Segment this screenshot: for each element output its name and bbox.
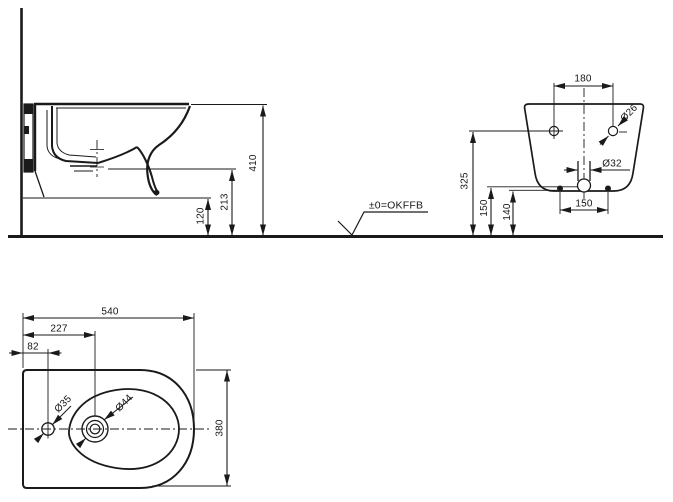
- mounting-bracket: [24, 104, 33, 172]
- foot-tip: [154, 190, 160, 195]
- side-view-dimensions: 410 213 120: [108, 105, 267, 236]
- drawing-canvas: 410 213 120 ±0=OKFFB Ø26: [0, 0, 673, 502]
- side-view: 410 213 120: [23, 104, 267, 236]
- dim-label-top-hole-spacing: 180: [574, 74, 592, 85]
- datum-level-symbol: [338, 212, 428, 235]
- dim-label-fixing-height: 140: [502, 203, 513, 221]
- bidet-side-profile: [23, 104, 211, 198]
- dim-label-outlet-offset: 227: [50, 324, 68, 335]
- dim-label-clearance: 120: [196, 207, 207, 225]
- dim-label-bottom-fixing-spacing: 150: [575, 199, 593, 210]
- dim-label-tap-offset: 82: [27, 342, 39, 353]
- technical-drawing-bidet: 410 213 120 ±0=OKFFB Ø26: [0, 0, 673, 502]
- outlet-hole: [578, 179, 591, 192]
- plan-view: Ø35 Ø44 540 227 82 380: [8, 307, 231, 489]
- dim-label-top-hole-height: 325: [460, 172, 471, 190]
- dim-label-supply-height: 150: [479, 199, 490, 217]
- datum-label: ±0=OKFFB: [369, 200, 423, 212]
- fixing-point-right: [605, 186, 611, 192]
- dim-label-outlet-diameter: Ø32: [602, 159, 622, 170]
- floor-datum: ±0=OKFFB: [338, 200, 428, 236]
- dim-label-depth: 540: [101, 307, 119, 318]
- dim-label-outlet-height: 213: [220, 193, 231, 211]
- dim-label-total-height: 410: [248, 154, 259, 172]
- dim-label-width: 380: [215, 419, 226, 437]
- rear-view: Ø26 180 Ø32 325 150 140 150: [460, 74, 644, 236]
